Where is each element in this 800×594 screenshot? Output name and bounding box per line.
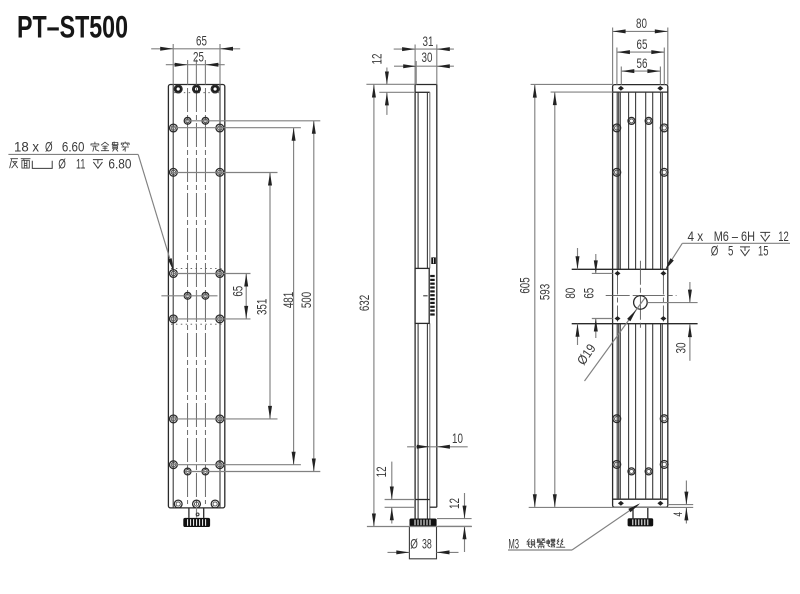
svg-text:12: 12 <box>778 228 789 244</box>
svg-text:12: 12 <box>369 53 385 64</box>
svg-text:500: 500 <box>298 292 314 308</box>
svg-text:38: 38 <box>422 535 432 551</box>
svg-text:351: 351 <box>253 299 269 315</box>
svg-text:31: 31 <box>423 33 434 49</box>
svg-text:593: 593 <box>537 284 553 300</box>
svg-text:18 x: 18 x <box>14 139 39 155</box>
svg-text:Ø: Ø <box>45 139 53 155</box>
svg-text:5: 5 <box>728 243 734 259</box>
svg-text:25: 25 <box>193 49 204 65</box>
svg-text:605: 605 <box>517 277 533 293</box>
svg-text:Ø: Ø <box>410 535 418 551</box>
svg-text:4: 4 <box>673 512 685 517</box>
svg-text:65: 65 <box>580 288 596 299</box>
svg-text:65: 65 <box>637 36 648 52</box>
svg-text:56: 56 <box>637 55 648 71</box>
svg-text:15: 15 <box>758 243 769 259</box>
svg-text:12: 12 <box>446 498 462 509</box>
svg-text:30: 30 <box>422 49 433 65</box>
svg-text:65: 65 <box>229 286 245 297</box>
svg-text:481: 481 <box>280 292 296 308</box>
svg-text:632: 632 <box>356 295 372 311</box>
svg-text:6.60: 6.60 <box>62 139 85 155</box>
svg-text:M3: M3 <box>508 536 519 552</box>
svg-text:Ø: Ø <box>58 155 66 171</box>
svg-text:80: 80 <box>562 288 578 299</box>
svg-text:80: 80 <box>636 15 647 31</box>
svg-text:6.80: 6.80 <box>108 155 131 171</box>
svg-text:11: 11 <box>76 155 86 171</box>
svg-text:30: 30 <box>672 342 688 353</box>
svg-text:PT–ST500: PT–ST500 <box>17 9 128 45</box>
svg-text:M6 – 6H: M6 – 6H <box>714 228 755 244</box>
svg-text:4 x: 4 x <box>688 228 704 244</box>
svg-text:10: 10 <box>452 430 463 446</box>
svg-text:Ø: Ø <box>711 243 719 259</box>
svg-text:65: 65 <box>196 33 207 49</box>
svg-text:12: 12 <box>373 466 389 477</box>
